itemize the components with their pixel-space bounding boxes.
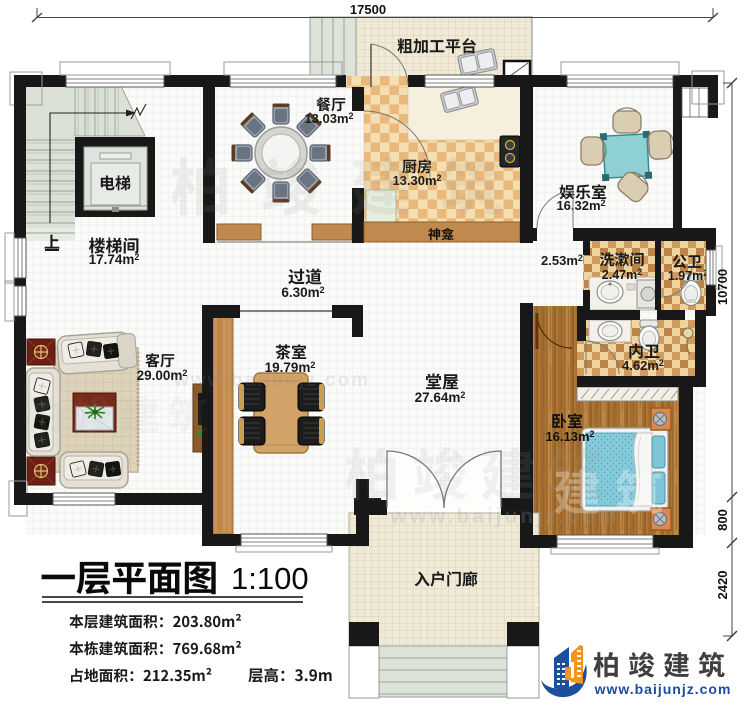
svg-text:4.62m2: 4.62m2 <box>622 358 664 373</box>
svg-text:13.03m2: 13.03m2 <box>304 111 353 126</box>
svg-text:27.64m2: 27.64m2 <box>415 390 466 405</box>
svg-text:17500: 17500 <box>350 2 386 17</box>
svg-text:www.baijunjz.com: www.baijunjz.com <box>173 370 370 391</box>
svg-text:2.53m2: 2.53m2 <box>541 253 583 268</box>
svg-text:10700: 10700 <box>715 269 730 305</box>
svg-text:6.30m2: 6.30m2 <box>281 285 324 300</box>
svg-text:1:100: 1:100 <box>231 561 309 596</box>
svg-text:17.74m2: 17.74m2 <box>89 252 140 267</box>
svg-text:www.baijunjz.com: www.baijunjz.com <box>389 505 619 528</box>
svg-text:800: 800 <box>715 509 730 531</box>
svg-text:16.13m2: 16.13m2 <box>545 429 594 444</box>
svg-text:www.baijunjz.com: www.baijunjz.com <box>594 681 732 697</box>
svg-text:unjz.com: unjz.com <box>534 590 632 611</box>
svg-text:1.97m2: 1.97m2 <box>668 268 708 283</box>
svg-text:2420: 2420 <box>715 571 730 600</box>
svg-text:16.32m2: 16.32m2 <box>556 198 605 213</box>
svg-text:2.47m2: 2.47m2 <box>602 267 642 282</box>
